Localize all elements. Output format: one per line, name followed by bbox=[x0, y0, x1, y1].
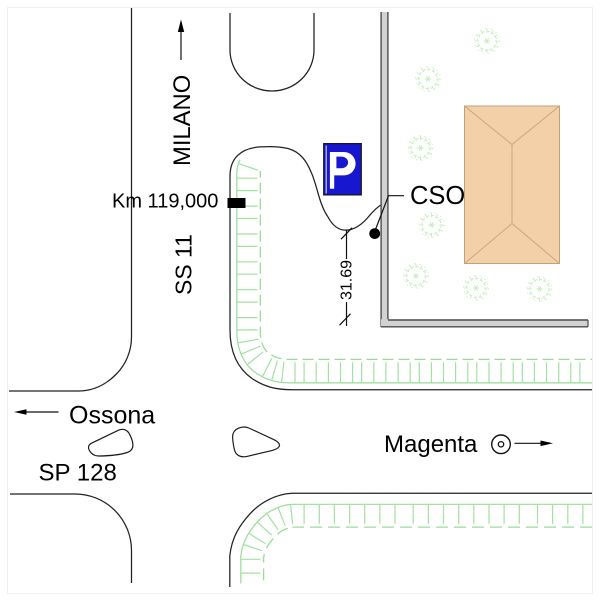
svg-text:Ossona: Ossona bbox=[69, 402, 155, 430]
svg-text:SP 128: SP 128 bbox=[39, 460, 117, 487]
svg-text:Km 119,000: Km 119,000 bbox=[112, 191, 218, 213]
svg-text:SS 11: SS 11 bbox=[171, 234, 197, 295]
svg-text:MILANO: MILANO bbox=[169, 75, 196, 166]
svg-text:CSO: CSO bbox=[410, 182, 465, 210]
svg-text:31.69: 31.69 bbox=[339, 260, 356, 300]
svg-text:Magenta: Magenta bbox=[384, 431, 478, 458]
